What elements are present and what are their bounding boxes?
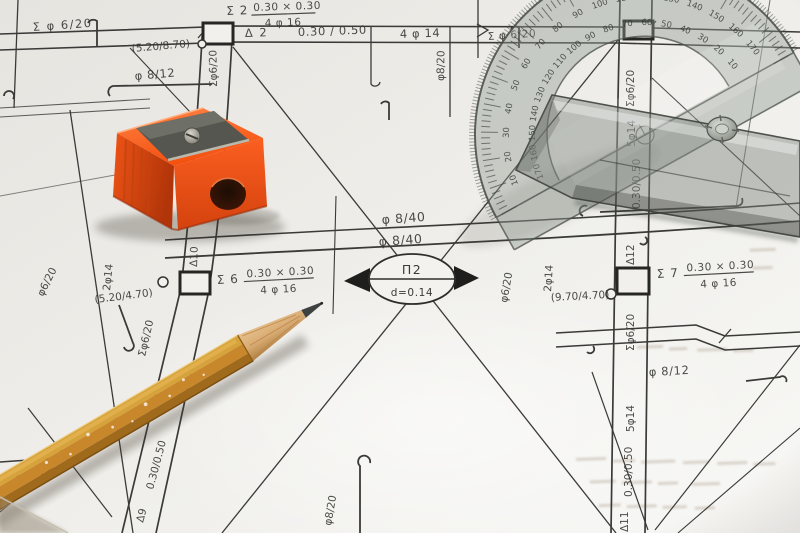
- photo-blueprint-scene: Π2 d=0.14 Σ φ 6/20 Δ 2 0.30 / 0.50 4 φ 1…: [0, 0, 800, 533]
- photo-vignette: [0, 0, 800, 533]
- scene-canvas: Π2 d=0.14 Σ φ 6/20 Δ 2 0.30 / 0.50 4 φ 1…: [0, 0, 800, 533]
